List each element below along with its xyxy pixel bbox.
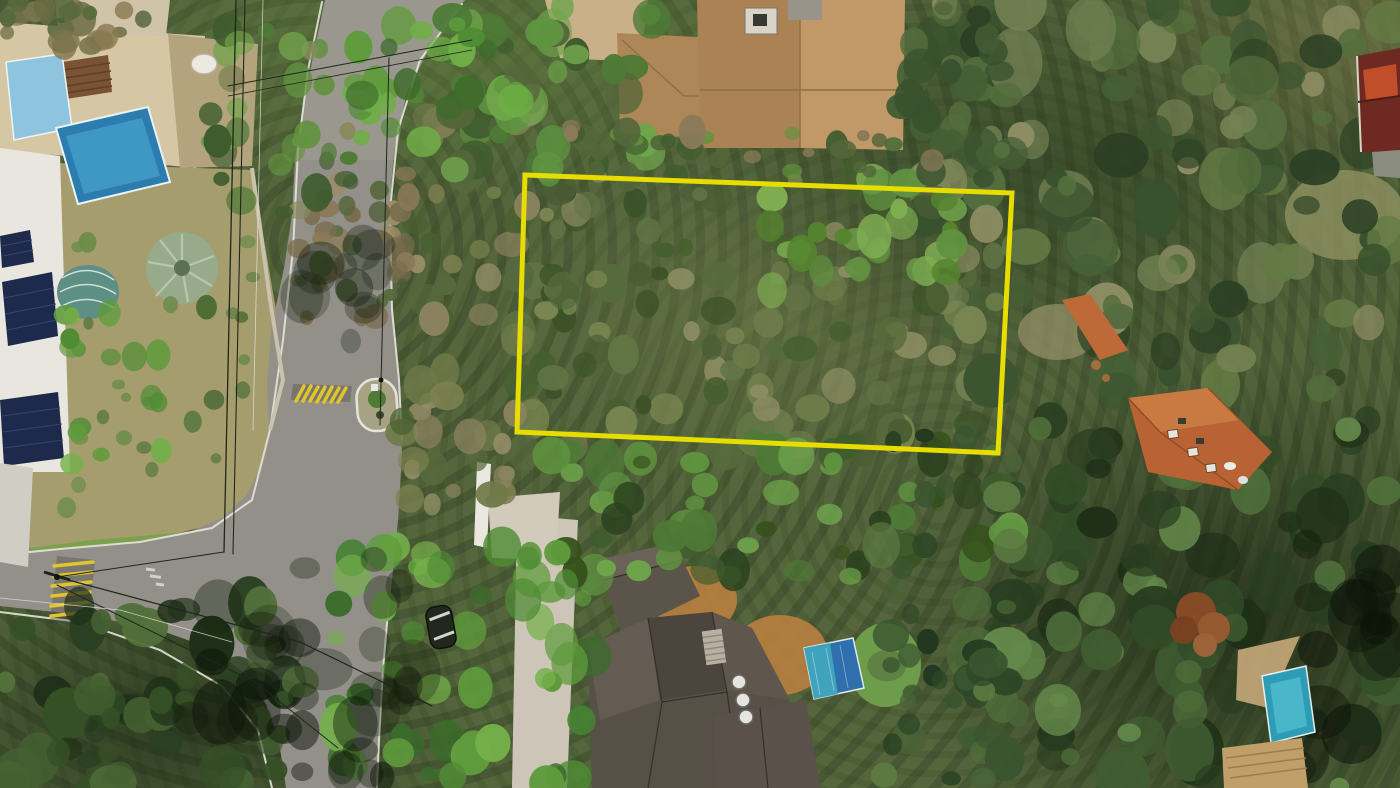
- solar-panel-array-2: [2, 272, 58, 346]
- small-shed: [788, 0, 822, 20]
- concrete-driveway-left: [0, 463, 33, 567]
- white-vehicle-dot-1: [1224, 462, 1236, 470]
- parked-car: [425, 604, 458, 650]
- chimney: [745, 8, 777, 34]
- tarp-covered-pool: [804, 638, 864, 699]
- forest-zone-plot-interior: [501, 156, 1006, 470]
- white-vehicle-dot-2: [1238, 476, 1248, 484]
- terracotta-roof-main: [1128, 388, 1272, 490]
- speed-bump-top: [291, 384, 352, 402]
- island-plant: [368, 390, 386, 408]
- slat-roof: [1222, 738, 1308, 788]
- aerial-photo: [0, 0, 1400, 788]
- island-post: [371, 384, 378, 391]
- forest-zone-below-plot: [533, 430, 1029, 596]
- agave-palm: [146, 232, 218, 304]
- roof-main-right-facet: [800, 0, 905, 150]
- scene-svg: [0, 0, 1400, 788]
- gray-patio: [1372, 150, 1400, 178]
- white-shed: [191, 54, 217, 74]
- solar-panel-array-3: [0, 392, 64, 466]
- solar-panel-array-1: [0, 230, 34, 268]
